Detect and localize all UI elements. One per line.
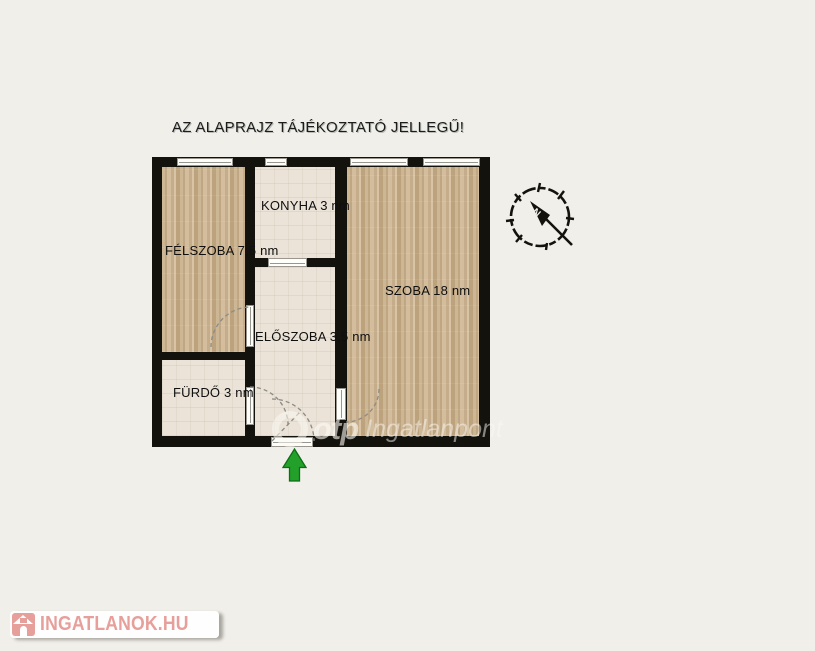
room-label-furdo: FÜRDŐ 3 nm [173,385,254,400]
entrance-arrow-icon [281,446,309,484]
ingatlanok-logo: INGATLANOK.HU [10,611,219,638]
north-compass-icon: N [502,179,580,257]
logo-text: INGATLANOK.HU [40,613,189,636]
room-label-felszoba: FÉLSZOBA 7,5 nm [165,243,279,258]
room-label-eloszoba: ELŐSZOBA 3,5 nm [255,329,371,344]
room-label-konyha: KONYHA 3 nm [261,198,350,213]
room-label-szoba: SZOBA 18 nm [385,283,470,298]
floorplan-image: AZ ALAPRAJZ TÁJÉKOZTATÓ JELLEGŰ! FÉLSZOB… [0,0,815,651]
house-icon [12,613,35,636]
door-swing-arcs [0,0,815,651]
